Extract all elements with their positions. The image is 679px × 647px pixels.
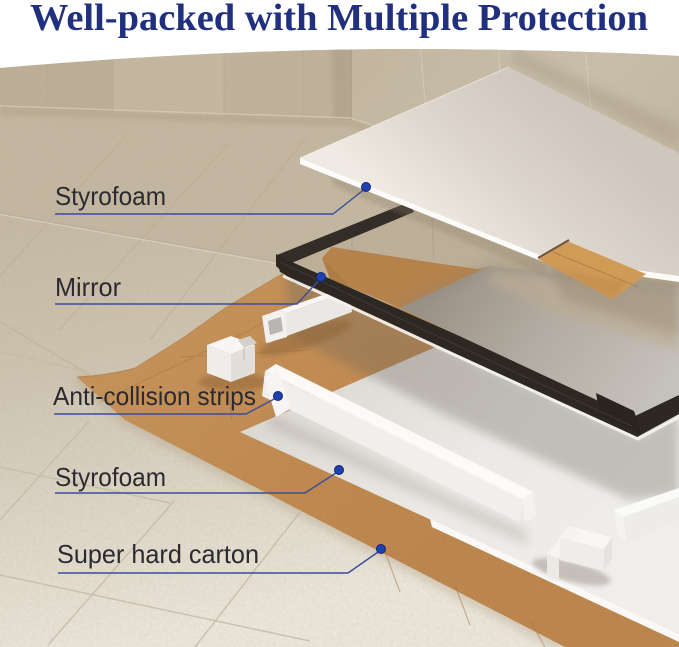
svg-text:Mirror: Mirror <box>55 272 121 302</box>
svg-text:Styrofoam: Styrofoam <box>55 462 166 492</box>
svg-text:Well-packed with Multiple Prot: Well-packed with Multiple Protection <box>30 0 648 39</box>
svg-text:Super hard carton: Super hard carton <box>57 539 259 569</box>
svg-text:Styrofoam: Styrofoam <box>55 181 166 211</box>
svg-text:Anti-collision strips: Anti-collision strips <box>53 381 256 411</box>
